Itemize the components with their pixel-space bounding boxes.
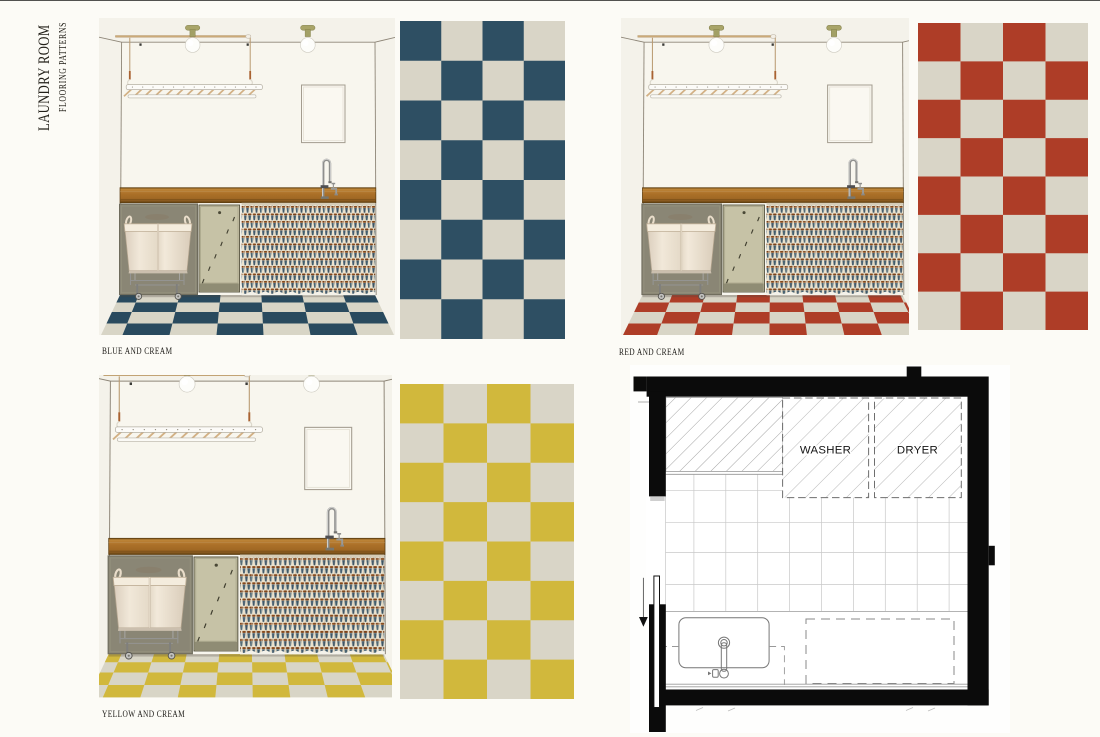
svg-text:WASHER: WASHER: [800, 445, 851, 457]
svg-text:DRYER: DRYER: [897, 445, 938, 457]
